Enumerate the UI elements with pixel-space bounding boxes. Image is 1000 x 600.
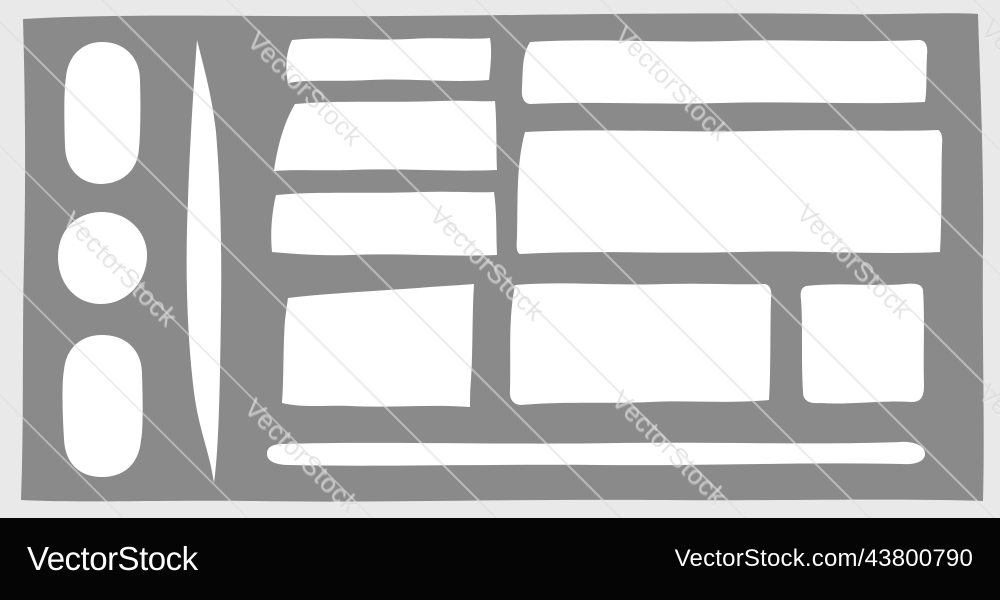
torn-square-middle bbox=[282, 284, 474, 407]
torn-strip-right-large bbox=[517, 130, 943, 254]
image-url-text: VectorStock.com/43800790 bbox=[675, 545, 973, 573]
torn-strip-middle-2 bbox=[274, 101, 497, 171]
horizontal-line-stroke bbox=[267, 442, 925, 466]
footer-bar: VectorStock VectorStock.com/43800790 bbox=[0, 518, 1000, 600]
vectorstock-logo-text: VectorStock bbox=[27, 540, 198, 578]
torn-paper-illustration bbox=[0, 0, 1000, 518]
capsule-shape-top bbox=[64, 42, 140, 184]
torn-rect-bottom-right bbox=[801, 284, 924, 404]
torn-strip-middle-1 bbox=[286, 38, 491, 83]
stock-image-preview: VectorStockVectorStockVectorStockVectorS… bbox=[0, 0, 1000, 600]
torn-strip-right-top bbox=[522, 40, 927, 104]
torn-rect-bottom-middle bbox=[510, 283, 771, 405]
torn-strip-middle-3 bbox=[271, 192, 497, 256]
capsule-shape-bottom bbox=[63, 335, 143, 477]
